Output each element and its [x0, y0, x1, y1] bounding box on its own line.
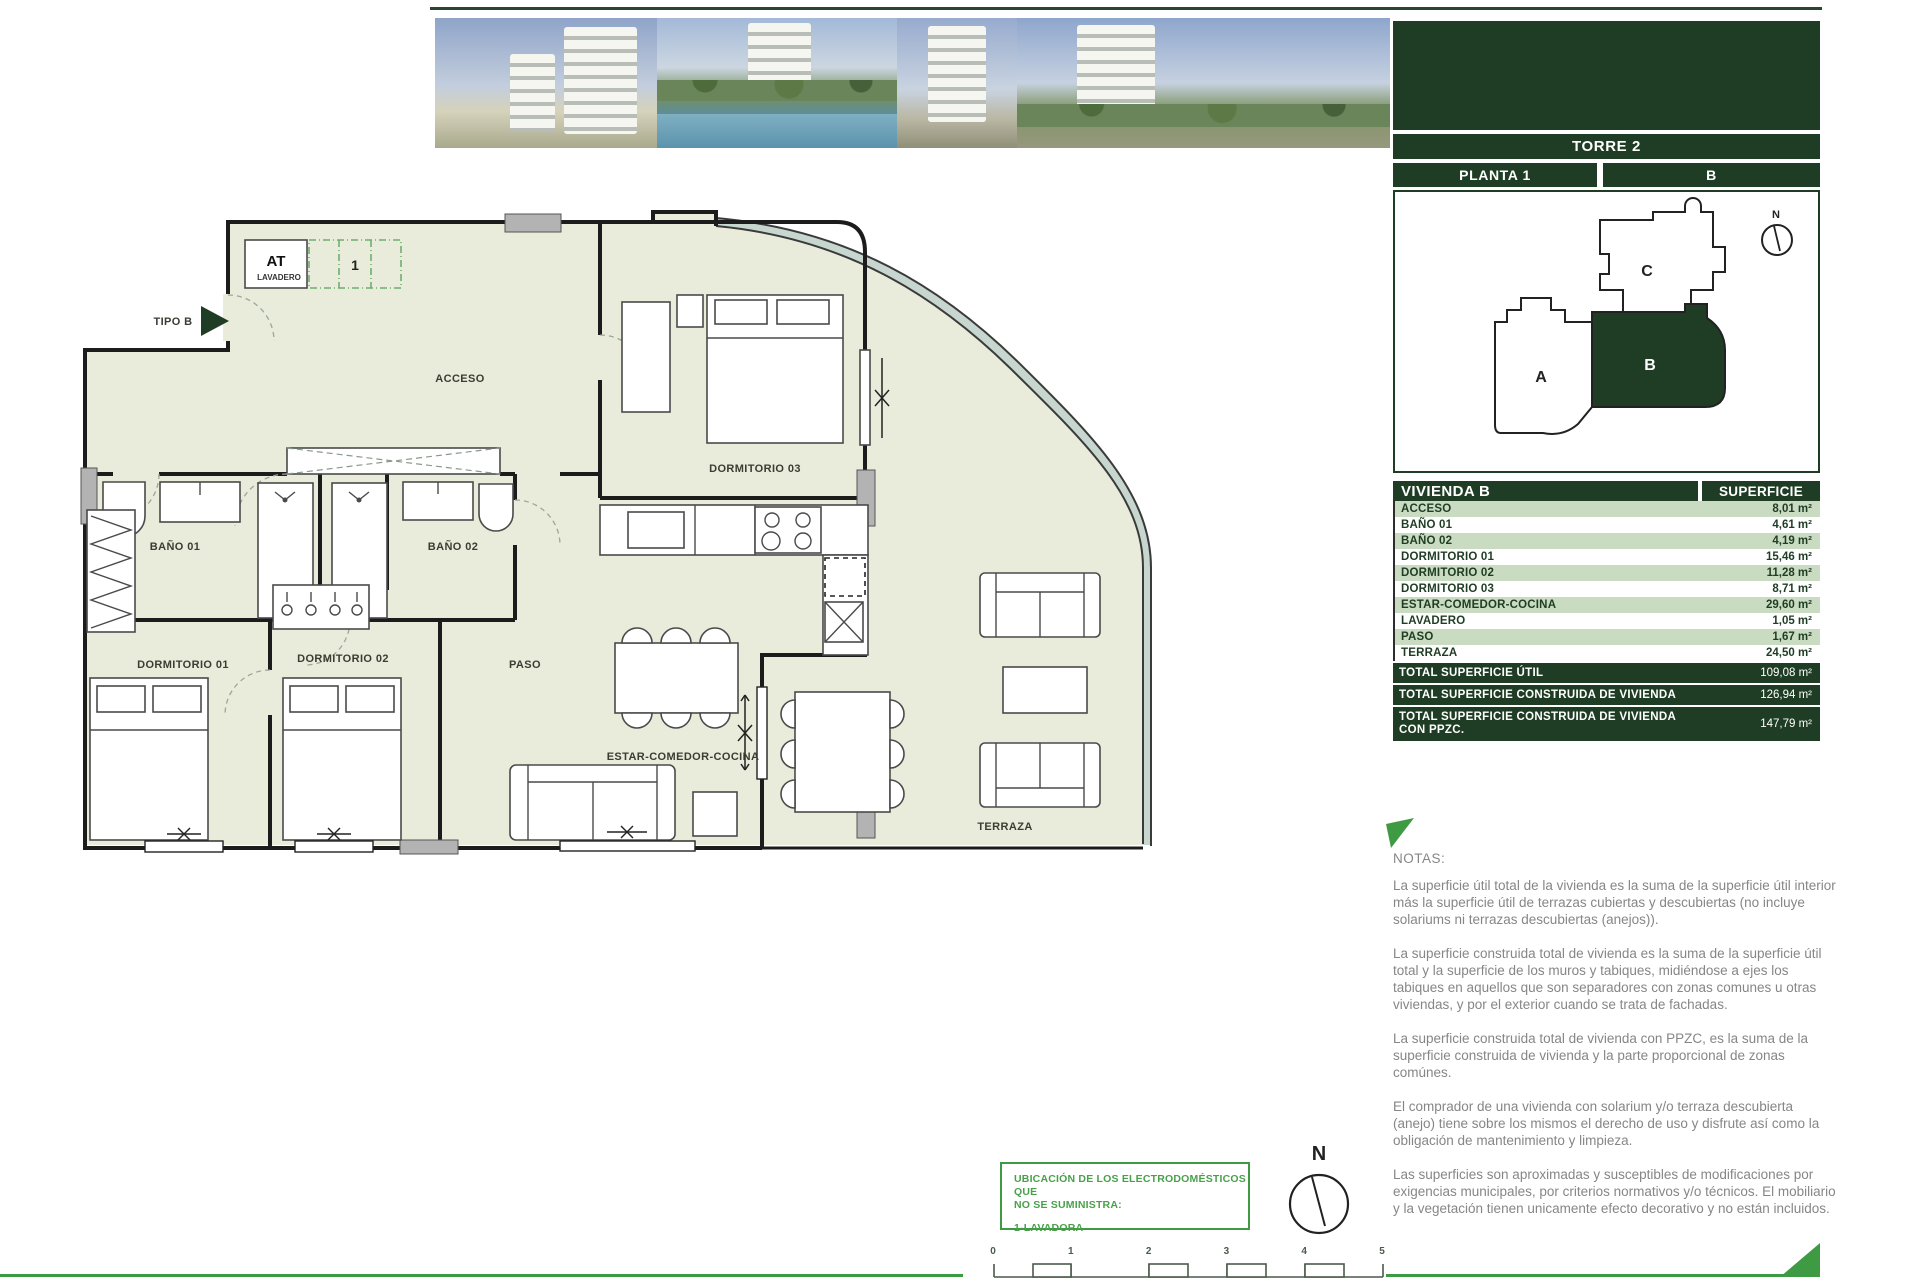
dormitorio03-label: DORMITORIO 03 [709, 463, 801, 475]
estar-label: ESTAR-COMEDOR-COCINA [607, 751, 760, 763]
area-row: BAÑO 024,19 m² [1393, 533, 1820, 549]
area-row: DORMITORIO 0115,46 m² [1393, 549, 1820, 565]
notes-paragraphs: La superficie útil total de la vivienda … [1393, 877, 1836, 1217]
torre-band: TORRE 2 [1393, 134, 1820, 159]
notes-block: NOTAS: La superficie útil total de la vi… [1393, 850, 1836, 1234]
scale-number: 2 [1146, 1246, 1152, 1257]
scale-bar-numbers: 012345 [993, 1246, 1383, 1258]
area-table-header: VIVIENDA B SUPERFICIE [1393, 481, 1820, 501]
trees [657, 80, 897, 101]
unit-b-outline [1592, 304, 1725, 407]
notes-paragraph: El comprador de una vivienda con solariu… [1393, 1098, 1836, 1149]
area-total-row: TOTAL SUPERFICIE CONSTRUIDA DE VIVIENDA1… [1393, 685, 1820, 705]
key-plan-box: C A B N [1393, 190, 1820, 473]
render-photo-1 [435, 18, 657, 148]
scale-number: 0 [990, 1246, 996, 1257]
notes-paragraph: La superficie útil total de la vivienda … [1393, 877, 1836, 928]
table-title: VIVIENDA B [1393, 481, 1698, 501]
building-render [510, 54, 554, 132]
legend-line1: UBICACIÓN DE LOS ELECTRODOMÉSTICOS QUE [1014, 1173, 1248, 1199]
render-photo-4 [1017, 18, 1390, 148]
notes-corner-triangle [1386, 818, 1418, 852]
area-row: BAÑO 014,61 m² [1393, 517, 1820, 533]
pool [657, 114, 897, 148]
table-column: SUPERFICIE [1702, 481, 1820, 501]
legend-line2: NO SE SUMINISTRA: [1014, 1199, 1248, 1212]
area-row: DORMITORIO 038,71 m² [1393, 581, 1820, 597]
unit-band: B [1603, 163, 1820, 187]
notes-heading: NOTAS: [1393, 850, 1836, 867]
floor-plan: TIPO B AT LAVADERO 1 [55, 200, 1155, 880]
area-row: PASO1,67 m² [1393, 629, 1820, 645]
keyplan-north-arrow: N [1762, 209, 1792, 255]
notes-paragraph: Las superficies son aproximadas y suscep… [1393, 1166, 1836, 1217]
cover-block [1393, 21, 1820, 130]
scale-number: 4 [1301, 1246, 1307, 1257]
north-compass: N [1283, 1138, 1357, 1244]
notes-paragraph: La superficie construida total de vivien… [1393, 1030, 1836, 1081]
svg-text:N: N [1772, 209, 1780, 221]
render-photo-3 [897, 18, 1017, 148]
top-rule [430, 7, 1822, 10]
paso-label: PASO [509, 659, 541, 671]
area-row: ESTAR-COMEDOR-COCINA29,60 m² [1393, 597, 1820, 613]
notes-paragraph: La superficie construida total de vivien… [1393, 945, 1836, 1013]
scale-number: 1 [1068, 1246, 1074, 1257]
unit-a-outline [1495, 298, 1592, 434]
area-row: DORMITORIO 0211,28 m² [1393, 565, 1820, 581]
dormitorio02-label: DORMITORIO 02 [297, 653, 389, 665]
area-table: VIVIENDA B SUPERFICIE ACCESO8,01 m²BAÑO … [1393, 481, 1820, 741]
dormitorio01-label: DORMITORIO 01 [137, 659, 229, 671]
bottom-rule-left [0, 1274, 963, 1277]
building-render [928, 26, 986, 122]
lavadora-slot-label: 1 [351, 257, 359, 273]
key-plan: C A B N [1395, 192, 1818, 471]
render-photo-strip [435, 18, 1390, 148]
area-row: LAVADERO1,05 m² [1393, 613, 1820, 629]
render-photo-2 [657, 18, 897, 148]
at-label: AT [267, 253, 286, 270]
appliance-slot [825, 558, 865, 596]
area-table-totals: TOTAL SUPERFICIE ÚTIL109,08 m²TOTAL SUPE… [1393, 663, 1820, 741]
area-table-rows: ACCESO8,01 m²BAÑO 014,61 m²BAÑO 024,19 m… [1393, 501, 1820, 661]
building-render [564, 27, 637, 134]
unit-c-outline [1600, 198, 1725, 312]
terraza-label: TERRAZA [977, 821, 1032, 833]
unit-b-label: B [1644, 357, 1656, 374]
bano02-label: BAÑO 02 [428, 540, 478, 553]
legend-item: 1-LAVADORA [1014, 1222, 1248, 1235]
planta-band: PLANTA 1 [1393, 163, 1597, 187]
bottom-corner-triangle [1780, 1243, 1820, 1277]
compass-n-label: N [1312, 1143, 1326, 1165]
building-render [748, 23, 810, 85]
area-total-row: TOTAL SUPERFICIE ÚTIL109,08 m² [1393, 663, 1820, 683]
lavadero-label: LAVADERO [257, 273, 301, 282]
scale-number: 5 [1379, 1246, 1385, 1257]
scale-number: 3 [1224, 1246, 1230, 1257]
unit-c-label: C [1641, 263, 1653, 280]
area-total-row: TOTAL SUPERFICIE CONSTRUIDA DE VIVIENDA … [1393, 707, 1820, 741]
bano01-label: BAÑO 01 [150, 540, 200, 553]
acceso-label: ACCESO [435, 373, 485, 385]
area-row: TERRAZA24,50 m² [1393, 645, 1820, 661]
area-row: ACCESO8,01 m² [1393, 501, 1820, 517]
hall-wardrobe [287, 448, 500, 474]
bottom-rule-right [1386, 1274, 1784, 1277]
dining-set [615, 628, 738, 728]
appliance-legend: UBICACIÓN DE LOS ELECTRODOMÉSTICOS QUE N… [1000, 1162, 1250, 1230]
unit-a-label: A [1535, 369, 1547, 386]
scale-bar [993, 1258, 1385, 1279]
trees [1017, 104, 1390, 127]
tipo-b-label: TIPO B [153, 316, 192, 328]
